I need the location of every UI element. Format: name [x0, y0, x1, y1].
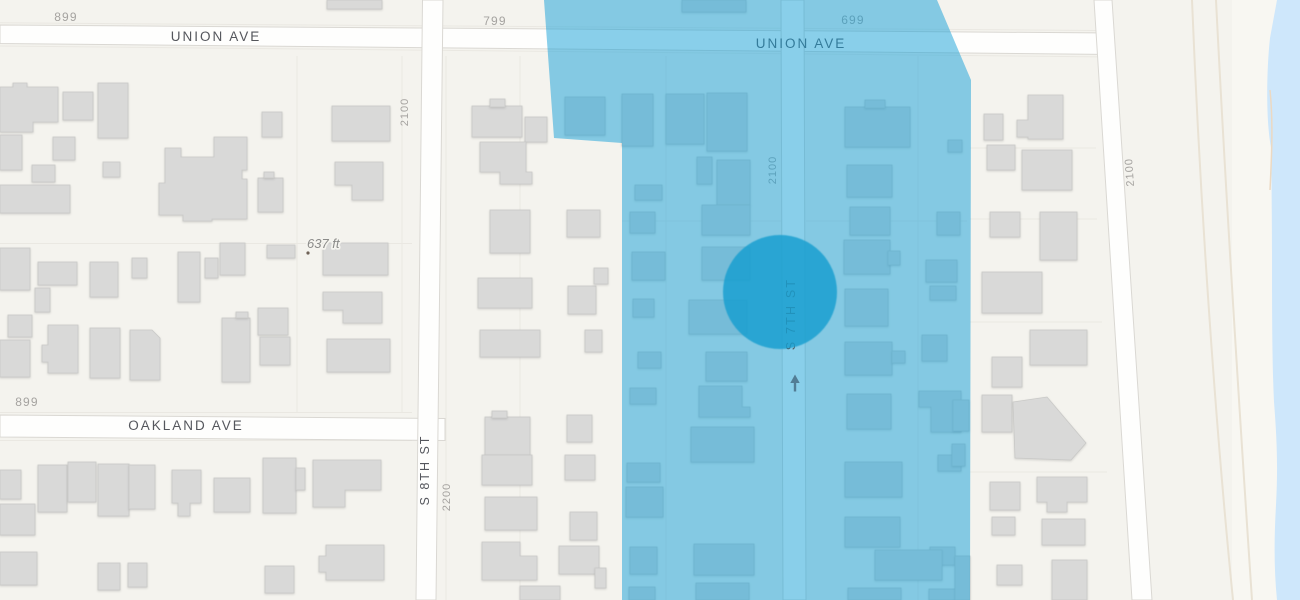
svg-text:S 8TH ST: S 8TH ST [418, 435, 432, 506]
svg-text:UNION AVE: UNION AVE [171, 29, 262, 44]
svg-text:2200: 2200 [441, 483, 453, 511]
svg-text:799: 799 [483, 14, 507, 28]
svg-text:OAKLAND AVE: OAKLAND AVE [128, 418, 244, 433]
svg-text:637 ft: 637 ft [307, 236, 341, 251]
svg-text:2100: 2100 [1123, 158, 1137, 187]
svg-text:899: 899 [54, 10, 78, 24]
svg-text:899: 899 [15, 395, 39, 409]
svg-text:2100: 2100 [399, 98, 411, 126]
